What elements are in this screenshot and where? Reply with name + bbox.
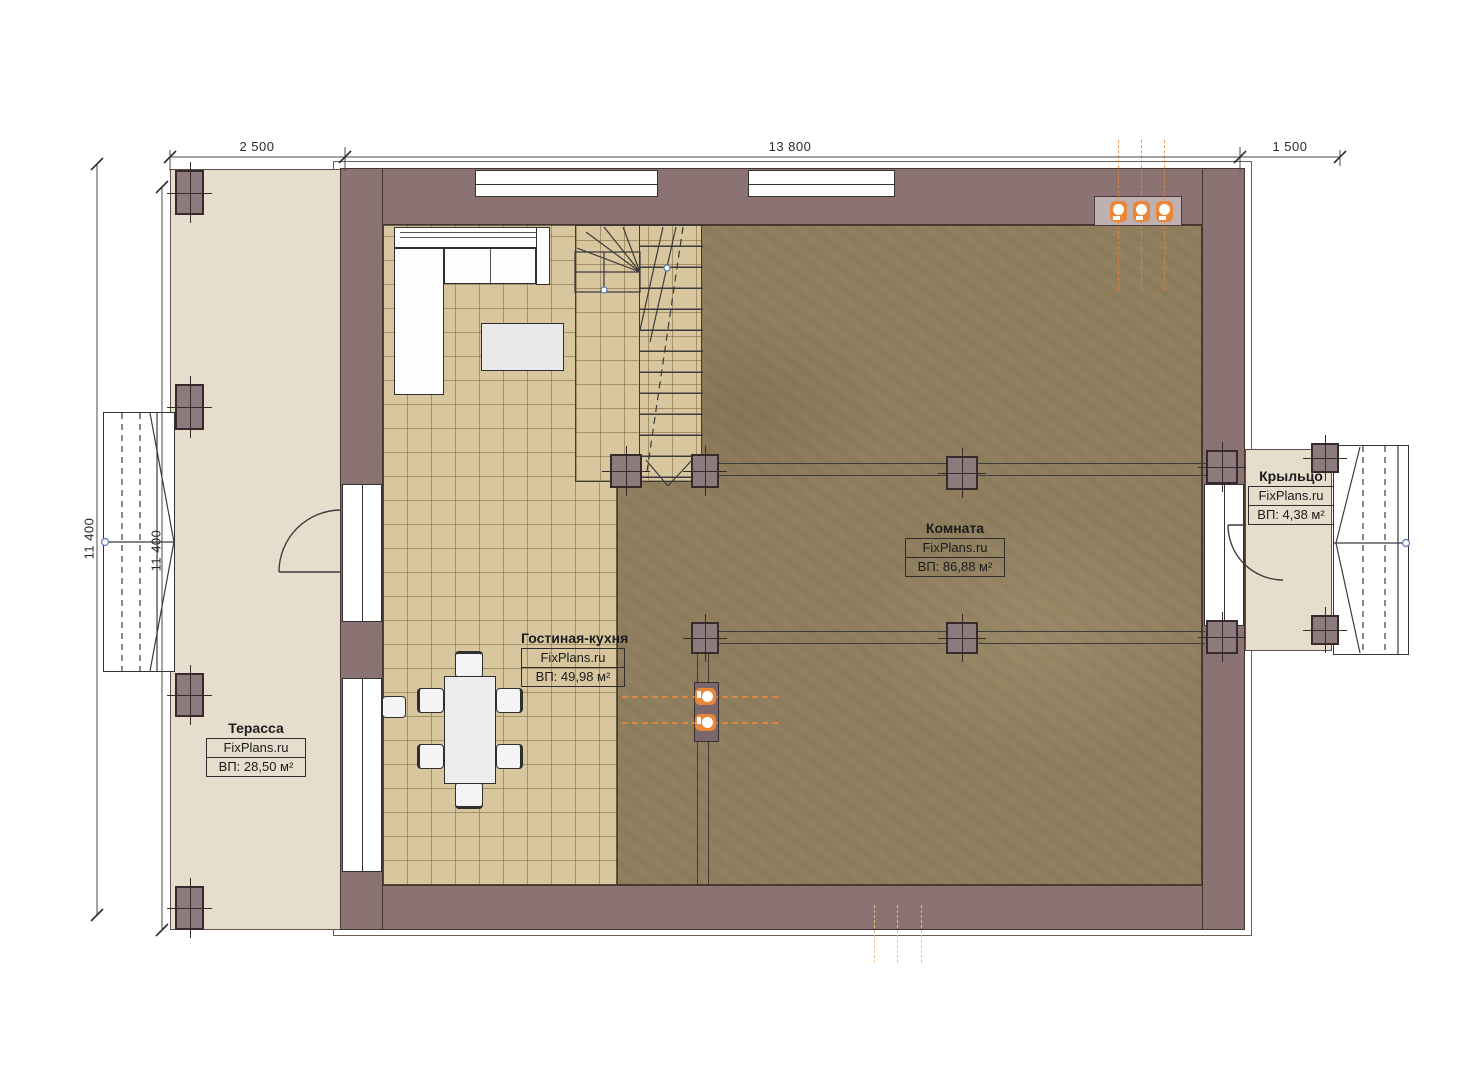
room-label: Комната FixPlans.ru ВП: 86,88 м²: [905, 520, 1005, 577]
sofa-back-line: [400, 237, 539, 238]
room-name: Гостиная-кухня: [521, 630, 625, 646]
sofa-back: [394, 227, 545, 248]
stair-flight: [639, 226, 703, 483]
column: [175, 886, 204, 930]
area-text: ВП: 4,38 м²: [1249, 505, 1333, 524]
dimension-label: 11 400: [82, 509, 97, 569]
sofa-armrest: [536, 227, 550, 285]
pipe-riser-icon: [695, 714, 716, 731]
dining-chair: [496, 688, 523, 713]
column: [175, 170, 204, 215]
dining-chair: [496, 744, 523, 769]
dimension-label: 11 400: [149, 521, 164, 581]
area-text: ВП: 86,88 м²: [906, 557, 1004, 576]
column: [175, 673, 204, 717]
column: [175, 384, 204, 430]
sofa-back-line: [400, 232, 539, 233]
area-text: ВП: 49,98 м²: [522, 667, 624, 686]
riser-axis-line: [921, 905, 922, 963]
sofa-seats: [444, 248, 536, 284]
dimension-label: 13 800: [750, 139, 830, 154]
riser-axis-line: [897, 905, 898, 963]
exterior-stair-right: [1333, 445, 1409, 655]
dining-chair: [417, 688, 444, 713]
brand-text: FixPlans.ru: [906, 539, 1004, 557]
door-opening-porch: [1204, 484, 1244, 626]
pipe-riser-icon: [695, 688, 716, 705]
porch-label: Крыльцо FixPlans.ru ВП: 4,38 м²: [1248, 468, 1334, 525]
riser-axis-line: [874, 905, 875, 963]
column: [946, 622, 978, 654]
dining-chair: [455, 782, 483, 809]
window-top-2: [748, 170, 895, 197]
pipe-riser-icon: [1110, 201, 1127, 222]
column: [946, 456, 978, 490]
dining-chair: [417, 744, 444, 769]
dimension-label: 1 500: [1250, 139, 1330, 154]
radiator: [382, 696, 406, 718]
window-top-1: [475, 170, 658, 197]
column: [691, 622, 719, 654]
dining-chair: [455, 651, 483, 678]
brand-text: FixPlans.ru: [207, 739, 305, 757]
room-info-box: FixPlans.ru ВП: 4,38 м²: [1248, 486, 1334, 525]
room-name: Комната: [905, 520, 1005, 536]
room-info-box: FixPlans.ru ВП: 86,88 м²: [905, 538, 1005, 577]
staircase: [575, 225, 702, 482]
living-kitchen-label: Гостиная-кухня FixPlans.ru ВП: 49,98 м²: [521, 630, 625, 687]
pipe-riser-icon: [1133, 201, 1150, 222]
floor-plan: 2 500 13 800 1 500 11 400 11 400 Терасса…: [0, 0, 1473, 1080]
wall-bottom: [340, 885, 1245, 930]
exterior-stair-left: [103, 412, 175, 672]
room-info-box: FixPlans.ru ВП: 49,98 м²: [521, 648, 625, 687]
column: [691, 454, 719, 488]
terrace-floor: [170, 169, 345, 930]
sofa-chaise: [394, 248, 444, 395]
pipe-riser-icon: [1156, 201, 1173, 222]
dimension-label: 2 500: [217, 139, 297, 154]
brand-text: FixPlans.ru: [522, 649, 624, 667]
room-name: Крыльцо: [1248, 468, 1334, 484]
window-left: [342, 678, 382, 872]
column: [1206, 450, 1238, 484]
room-info-box: FixPlans.ru ВП: 28,50 м²: [206, 738, 306, 777]
terrace-label: Терасса FixPlans.ru ВП: 28,50 м²: [206, 720, 306, 777]
area-text: ВП: 28,50 м²: [207, 757, 305, 776]
column: [1311, 615, 1339, 645]
column: [1206, 620, 1238, 654]
coffee-table: [481, 323, 564, 371]
dining-table: [444, 676, 496, 784]
column: [610, 454, 642, 488]
partition-wall: [697, 644, 709, 885]
brand-text: FixPlans.ru: [1249, 487, 1333, 505]
room-name: Терасса: [206, 720, 306, 736]
door-opening-terrace: [342, 484, 382, 622]
